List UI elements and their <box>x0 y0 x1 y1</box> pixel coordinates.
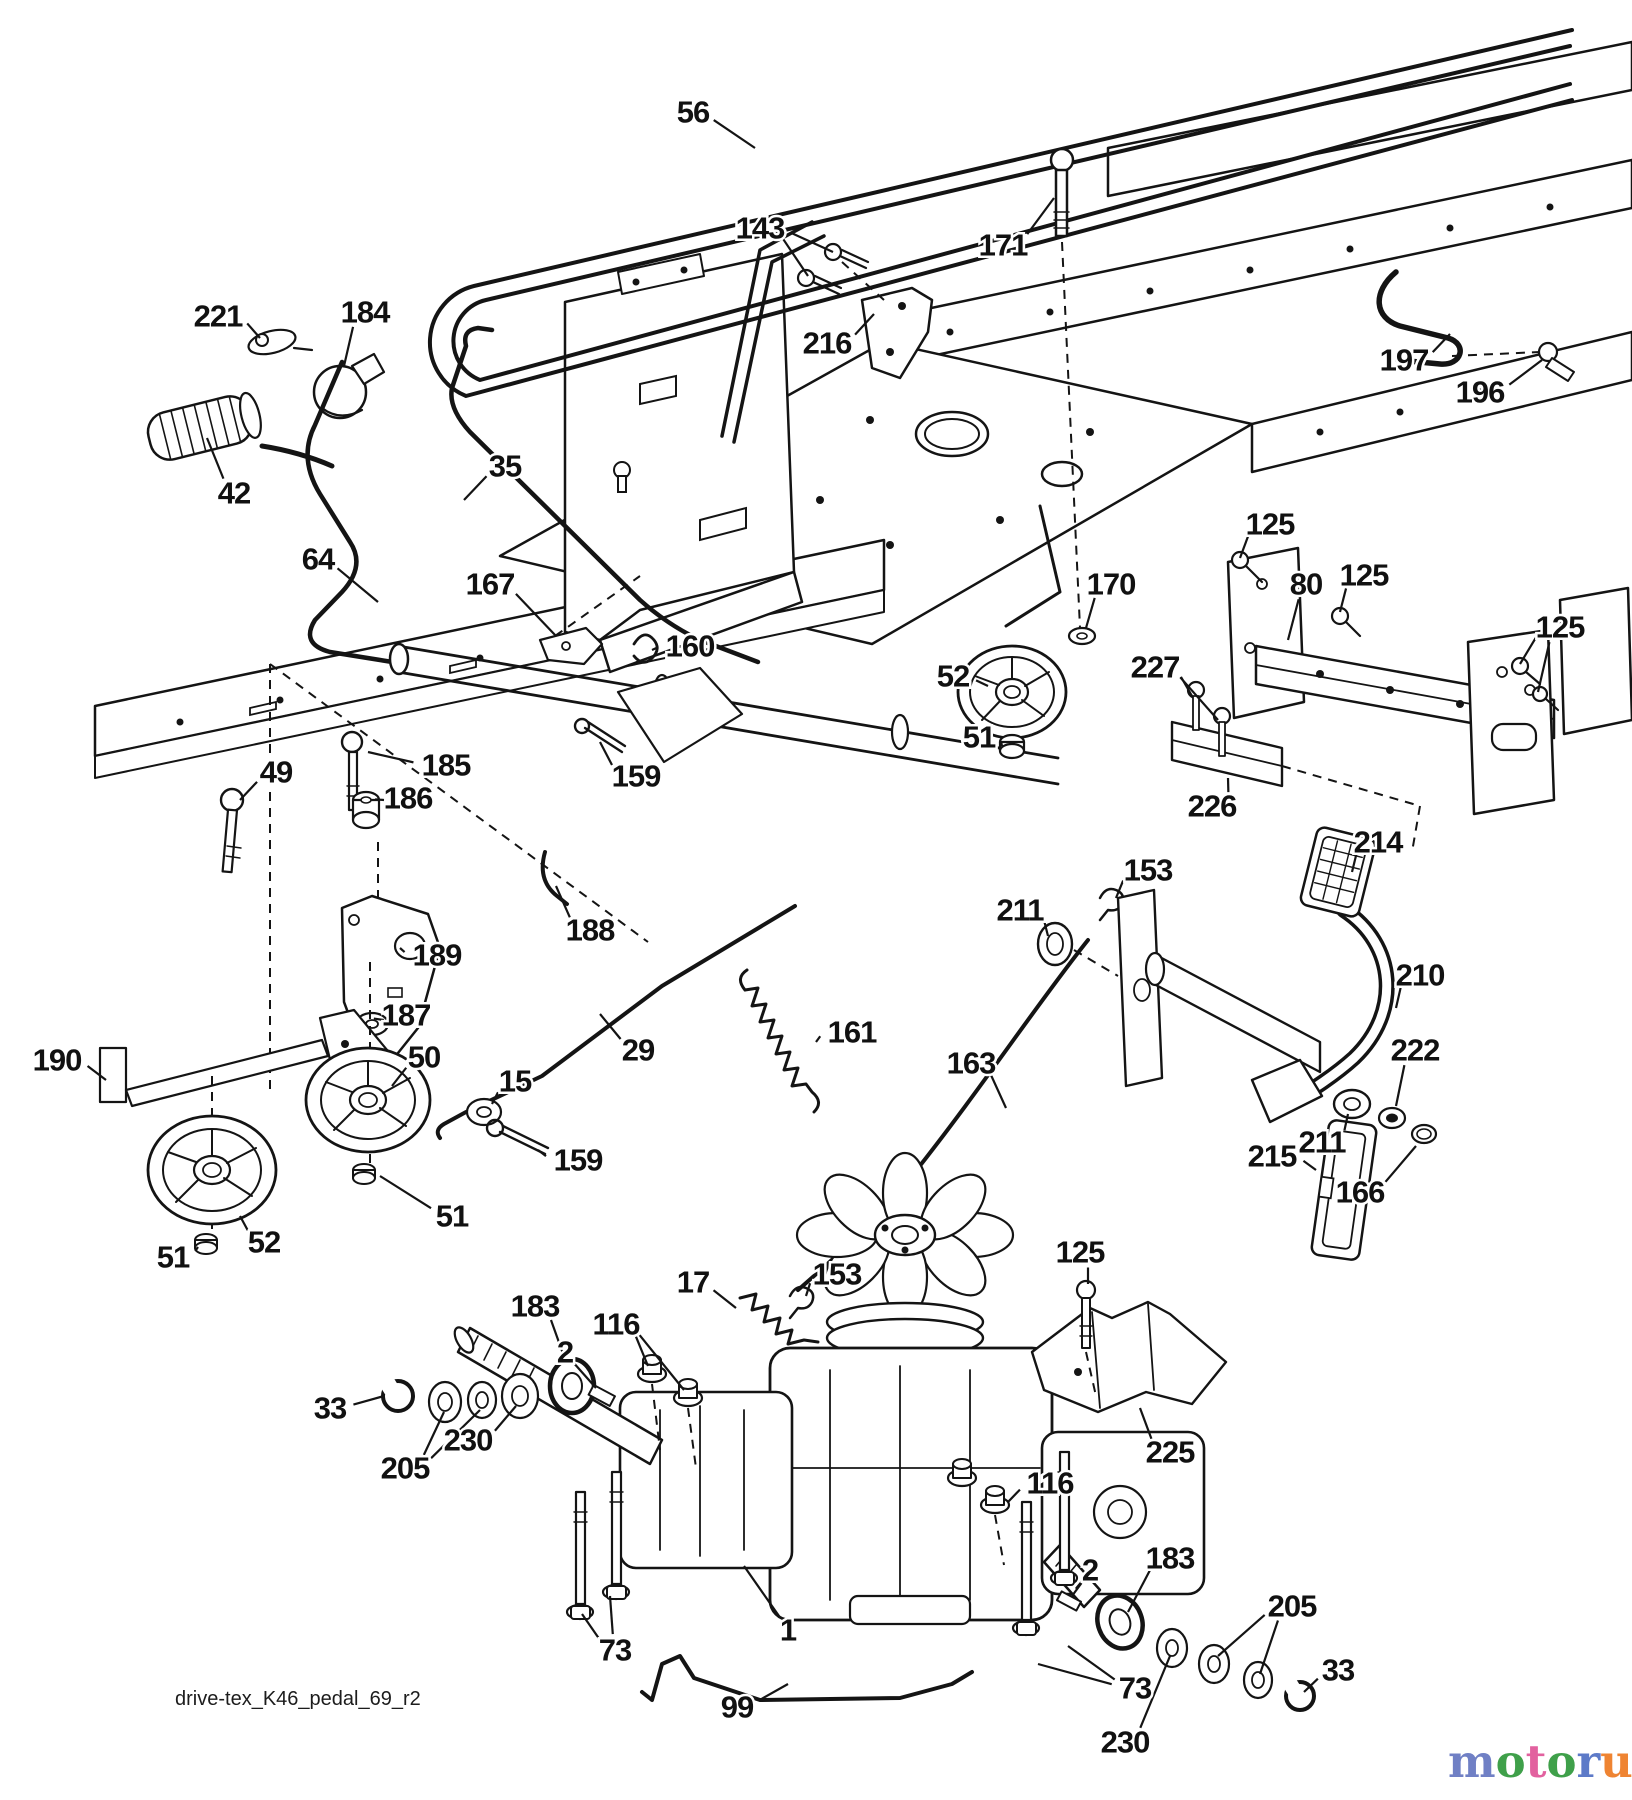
part-label-163[interactable]: 163 <box>947 1046 1006 1109</box>
part-label-51[interactable]: 51 <box>157 1240 198 1275</box>
part-label-210[interactable]: 210 <box>1396 958 1445 1009</box>
svg-text:226: 226 <box>1188 789 1237 824</box>
part-label-190[interactable]: 190 <box>33 1043 106 1081</box>
svg-text:51: 51 <box>963 720 996 755</box>
leader-line <box>1086 598 1095 628</box>
svg-text:159: 159 <box>612 759 661 794</box>
svg-text:35: 35 <box>489 449 522 484</box>
svg-text:73: 73 <box>1119 1671 1152 1706</box>
svg-text:222: 222 <box>1391 1033 1440 1068</box>
svg-text:187: 187 <box>382 998 431 1033</box>
svg-text:51: 51 <box>157 1240 190 1275</box>
leader-line <box>1001 743 1002 746</box>
part-label-170[interactable]: 170 <box>1086 567 1135 629</box>
leader-line <box>714 1290 736 1308</box>
svg-text:171: 171 <box>979 228 1028 263</box>
bracket-225 <box>1032 1302 1226 1412</box>
svg-text:230: 230 <box>444 1423 493 1458</box>
svg-text:125: 125 <box>1056 1235 1105 1270</box>
svg-text:17: 17 <box>677 1265 709 1300</box>
svg-text:153: 153 <box>813 1257 862 1292</box>
svg-text:80: 80 <box>1290 567 1322 602</box>
part-label-49[interactable]: 49 <box>240 755 293 801</box>
part-label-185[interactable]: 185 <box>368 748 471 783</box>
svg-text:167: 167 <box>466 567 515 602</box>
svg-text:116: 116 <box>592 1307 640 1342</box>
part-label-29[interactable]: 29 <box>600 1014 655 1068</box>
svg-text:52: 52 <box>248 1225 280 1260</box>
parts-diagram-page: 5614317121619719622118442356416716012580… <box>0 0 1632 1800</box>
nut-51-left <box>195 1234 217 1254</box>
svg-text:188: 188 <box>566 913 615 948</box>
svg-text:160: 160 <box>666 629 715 664</box>
svg-text:214: 214 <box>1354 825 1404 860</box>
svg-text:1: 1 <box>780 1613 797 1648</box>
latch-221 <box>246 326 312 359</box>
part-label-197[interactable]: 197 <box>1380 334 1450 378</box>
svg-text:33: 33 <box>314 1391 347 1426</box>
part-label-33[interactable]: 33 <box>314 1391 384 1426</box>
svg-text:216: 216 <box>803 326 852 361</box>
svg-text:215: 215 <box>1248 1139 1297 1174</box>
part-label-52[interactable]: 52 <box>240 1216 280 1260</box>
part-label-186[interactable]: 186 <box>375 781 433 816</box>
leader-line <box>1386 1146 1417 1182</box>
svg-text:99: 99 <box>721 1690 754 1725</box>
part-label-171[interactable]: 171 <box>979 198 1054 263</box>
bracket-80-group <box>1172 548 1632 852</box>
cotter-pin-159 <box>575 719 625 752</box>
leader-line <box>1396 1065 1404 1106</box>
svg-text:2: 2 <box>1082 1553 1098 1588</box>
svg-text:210: 210 <box>1396 958 1445 993</box>
bolts-73-left <box>567 1472 629 1619</box>
part-label-225[interactable]: 225 <box>1140 1408 1195 1470</box>
leader-line <box>338 568 378 602</box>
leader-line <box>247 323 260 338</box>
spring-17 <box>740 1294 818 1344</box>
svg-text:197: 197 <box>1380 343 1429 378</box>
svg-text:221: 221 <box>194 299 243 334</box>
logo-letter: r <box>1576 1735 1600 1788</box>
part-label-153[interactable]: 153 <box>806 1257 862 1297</box>
logo-letter: o <box>1546 1735 1576 1788</box>
part-label-205[interactable]: 205 <box>1218 1589 1317 1675</box>
exploded-parts-drawing: 5614317121619719622118442356416716012580… <box>0 0 1632 1800</box>
svg-text:184: 184 <box>341 295 391 330</box>
svg-text:56: 56 <box>677 95 710 130</box>
nut-51-center <box>353 1164 375 1184</box>
bolt-49 <box>221 789 243 872</box>
part-label-226[interactable]: 226 <box>1188 778 1237 824</box>
part-label-35[interactable]: 35 <box>464 449 522 501</box>
part-label-161[interactable]: 161 <box>816 1015 877 1050</box>
svg-text:163: 163 <box>947 1046 996 1081</box>
leader-line <box>816 1036 820 1042</box>
svg-text:186: 186 <box>384 781 433 816</box>
part-label-125[interactable]: 125 <box>1340 558 1389 613</box>
svg-text:52: 52 <box>937 659 969 694</box>
svg-text:227: 227 <box>1131 650 1180 685</box>
cooling-fan <box>797 1153 1013 1317</box>
svg-text:15: 15 <box>499 1064 532 1099</box>
nut-51-right <box>1000 735 1024 758</box>
svg-text:170: 170 <box>1087 567 1136 602</box>
drawing-code: drive-tex_K46_pedal_69_r2 <box>175 1688 421 1711</box>
part-label-222[interactable]: 222 <box>1391 1033 1440 1107</box>
svg-text:185: 185 <box>422 748 471 783</box>
svg-text:64: 64 <box>302 542 336 577</box>
spring-161 <box>740 970 818 1112</box>
washer-15-cotter-159 <box>467 1099 548 1154</box>
part-label-73[interactable]: 73 <box>1038 1646 1152 1706</box>
svg-text:189: 189 <box>413 938 462 973</box>
svg-text:159: 159 <box>554 1143 603 1178</box>
svg-text:225: 225 <box>1146 1435 1195 1470</box>
svg-text:205: 205 <box>1268 1589 1317 1624</box>
svg-text:196: 196 <box>1456 375 1505 410</box>
leader-line <box>380 1176 431 1208</box>
svg-text:205: 205 <box>381 1451 430 1486</box>
part-label-15[interactable]: 15 <box>492 1064 532 1105</box>
clip-153-lower <box>790 1287 813 1318</box>
svg-text:183: 183 <box>511 1289 560 1324</box>
part-label-211[interactable]: 211 <box>996 893 1048 937</box>
part-label-221[interactable]: 221 <box>194 299 260 339</box>
svg-text:50: 50 <box>408 1040 440 1075</box>
leader-line <box>610 1596 613 1634</box>
svg-text:166: 166 <box>1336 1175 1385 1210</box>
part-label-227[interactable]: 227 <box>1131 650 1218 721</box>
svg-text:190: 190 <box>33 1043 82 1078</box>
handle-shaft <box>262 446 332 466</box>
leader-line <box>714 120 755 148</box>
part-label-17[interactable]: 17 <box>677 1265 736 1309</box>
part-label-159[interactable]: 159 <box>600 742 661 794</box>
svg-text:116: 116 <box>1026 1466 1074 1501</box>
svg-text:230: 230 <box>1101 1725 1150 1760</box>
leader-line <box>344 327 353 366</box>
part-label-99[interactable]: 99 <box>721 1684 788 1725</box>
svg-text:2: 2 <box>557 1335 573 1370</box>
svg-text:125: 125 <box>1246 507 1295 542</box>
svg-text:51: 51 <box>436 1199 469 1234</box>
spacer-186 <box>353 792 379 828</box>
svg-text:73: 73 <box>599 1633 632 1668</box>
leader-line <box>1218 1615 1265 1656</box>
svg-text:33: 33 <box>1322 1653 1355 1688</box>
svg-text:161: 161 <box>828 1015 877 1050</box>
svg-text:211: 211 <box>996 893 1044 928</box>
leader-line <box>1260 1620 1278 1674</box>
part-label-56[interactable]: 56 <box>677 95 755 149</box>
leader-line <box>353 1396 384 1405</box>
svg-text:125: 125 <box>1536 610 1585 645</box>
leader-line <box>1303 1161 1316 1170</box>
part-label-33[interactable]: 33 <box>1304 1653 1355 1693</box>
part-label-51[interactable]: 51 <box>380 1176 469 1234</box>
motoruf-logo: motoruf.de <box>1448 1734 1632 1799</box>
svg-text:29: 29 <box>622 1033 655 1068</box>
svg-text:153: 153 <box>1124 853 1173 888</box>
svg-text:183: 183 <box>1146 1541 1195 1576</box>
svg-text:125: 125 <box>1340 558 1389 593</box>
svg-text:211: 211 <box>1298 1125 1346 1160</box>
logo-letter: u <box>1600 1735 1632 1788</box>
svg-text:49: 49 <box>260 755 293 790</box>
logo-letter: m <box>1448 1735 1496 1788</box>
leader-line <box>1038 1664 1112 1684</box>
grip-42 <box>144 390 265 464</box>
logo-letter: t <box>1526 1735 1547 1788</box>
part-label-125[interactable]: 125 <box>1056 1235 1105 1285</box>
logo-letter: o <box>1496 1735 1526 1788</box>
leader-line <box>240 782 257 800</box>
leader-line <box>464 476 487 500</box>
part-label-184[interactable]: 184 <box>341 295 391 367</box>
svg-text:42: 42 <box>218 476 250 511</box>
part-label-187[interactable]: 187 <box>374 998 431 1033</box>
svg-text:143: 143 <box>736 211 785 246</box>
rod-99 <box>642 1656 972 1700</box>
